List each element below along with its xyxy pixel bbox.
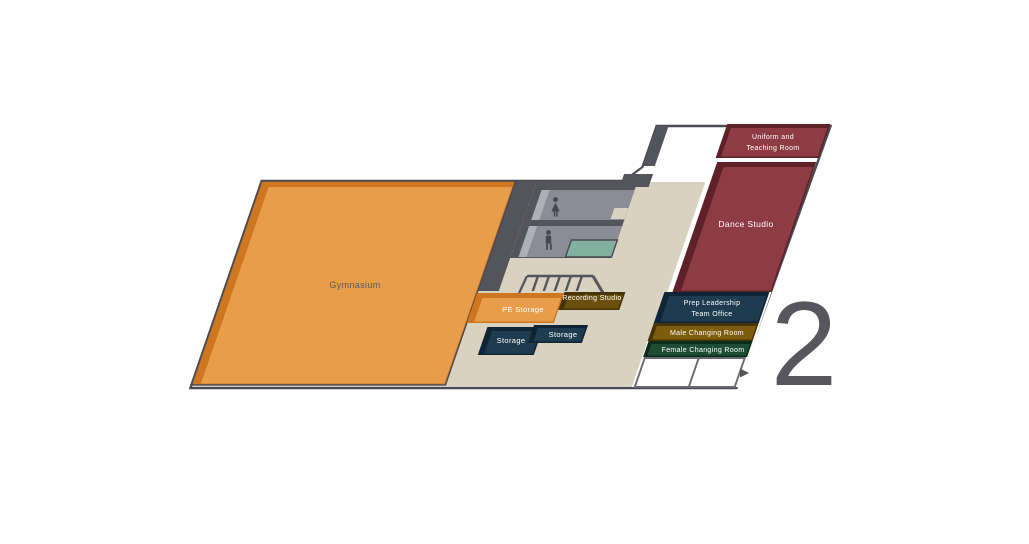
room-label-storage-west: Storage — [497, 336, 526, 345]
room-label-uniform-and-teaching-room: Teaching Room — [746, 145, 799, 152]
washroom-area[interactable] — [566, 240, 618, 257]
room-prep-leadership-team-office[interactable] — [654, 292, 770, 323]
room-label-gymnasium: Gymnasium — [329, 280, 380, 290]
room-label-uniform-and-teaching-room: Uniform and — [752, 134, 794, 141]
room-label-prep-leadership-team-office: Team Office — [691, 311, 732, 318]
floor-number: 2 — [771, 277, 838, 411]
room-label-female-changing-room: Female Changing Room — [662, 347, 745, 354]
room-label-dance-studio: Dance Studio — [718, 219, 773, 229]
room-label-male-changing-room: Male Changing Room — [670, 330, 744, 337]
room-label-storage-east: Storage — [549, 330, 578, 339]
unlabeled-rooms — [635, 358, 745, 387]
room-label-pe-storage: PE Storage — [502, 305, 544, 314]
room-label-recording-studio: Recording Studio — [562, 295, 621, 302]
room-uniform-and-teaching-room[interactable] — [716, 124, 831, 158]
floor-plan-canvas: GymnasiumPE StorageRecording StudioStora… — [0, 0, 1029, 544]
floor-plan-page: GymnasiumPE StorageRecording StudioStora… — [0, 0, 1029, 544]
room-floor-uniform-and-teaching-room — [721, 128, 827, 157]
room-label-prep-leadership-team-office: Prep Leadership — [684, 300, 741, 307]
